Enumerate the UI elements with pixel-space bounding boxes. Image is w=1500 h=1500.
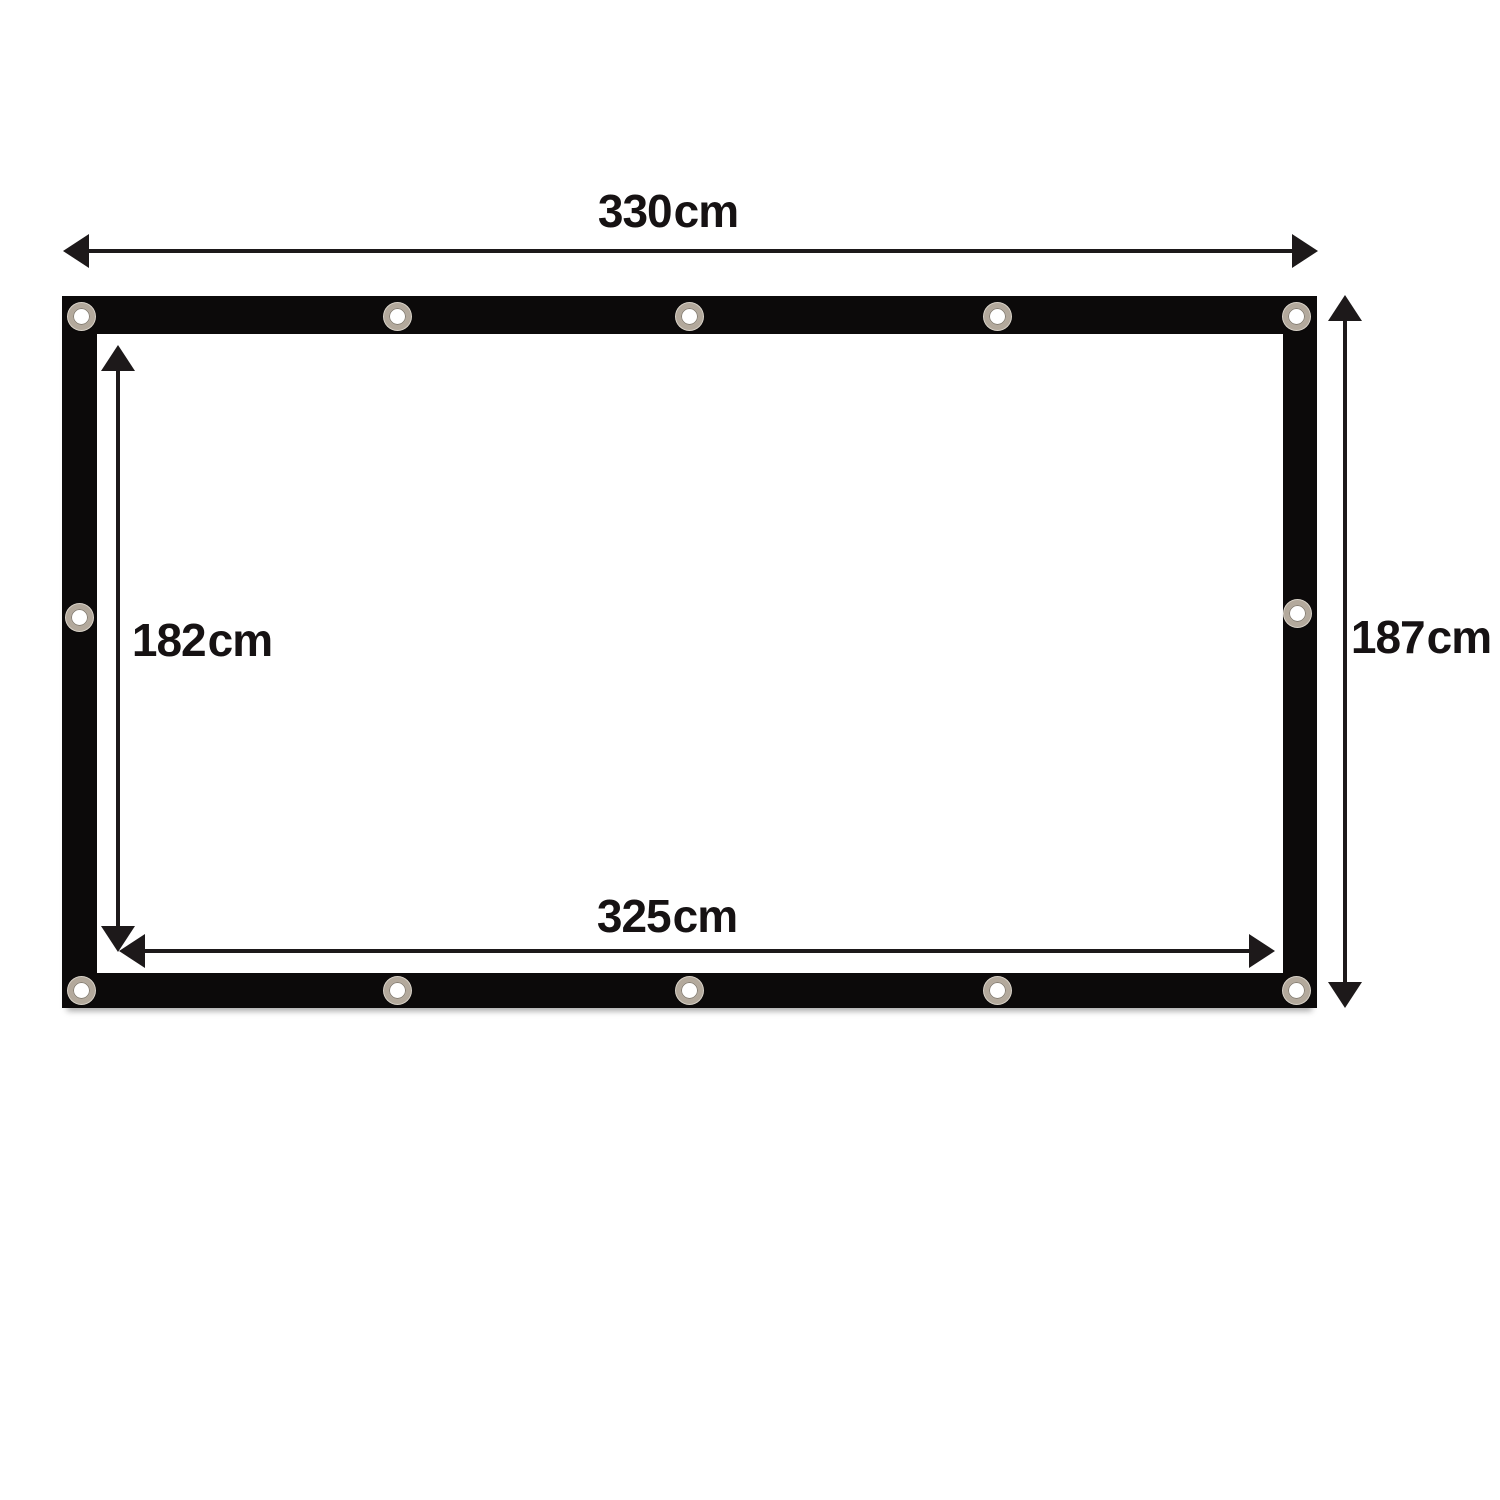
arrowhead-right-icon — [1292, 234, 1318, 268]
outer-width-label: 330cm — [598, 188, 738, 234]
arrow-shaft — [1343, 315, 1347, 988]
grommet-bottom-2 — [384, 977, 411, 1004]
inner-width-value: 325 — [597, 890, 671, 942]
grommet-bottom-5 — [1283, 977, 1310, 1004]
grommet-bottom-1 — [68, 977, 95, 1004]
arrowhead-up-icon — [1328, 295, 1362, 321]
grommet-top-1 — [68, 303, 95, 330]
dimension-diagram: 330cm 182cm 187cm 325cm — [0, 0, 1500, 1500]
grommet-top-5 — [1283, 303, 1310, 330]
inner-width-unit: cm — [673, 890, 737, 942]
outer-width-arrow — [63, 234, 1318, 268]
outer-height-value: 187 — [1351, 611, 1425, 663]
grommet-bottom-3 — [676, 977, 703, 1004]
arrow-shaft — [116, 365, 120, 932]
grommet-top-2 — [384, 303, 411, 330]
arrow-shaft — [83, 249, 1298, 253]
grommet-top-4 — [984, 303, 1011, 330]
arrowhead-left-icon — [119, 934, 145, 968]
grommet-middle-left — [66, 604, 93, 631]
arrowhead-right-icon — [1249, 934, 1275, 968]
outer-height-unit: cm — [1427, 611, 1491, 663]
arrowhead-down-icon — [1328, 982, 1362, 1008]
inner-height-value: 182 — [132, 614, 206, 666]
outer-width-unit: cm — [674, 185, 738, 237]
inner-height-unit: cm — [208, 614, 272, 666]
arrow-shaft — [139, 949, 1255, 953]
inner-height-label: 182cm — [132, 617, 272, 663]
inner-height-arrow — [101, 345, 135, 952]
grommet-top-3 — [676, 303, 703, 330]
outer-width-value: 330 — [598, 185, 672, 237]
outer-height-label: 187cm — [1351, 614, 1491, 660]
grommet-middle-right — [1284, 600, 1311, 627]
arrowhead-up-icon — [101, 345, 135, 371]
inner-width-label: 325cm — [597, 893, 737, 939]
grommet-bottom-4 — [984, 977, 1011, 1004]
arrowhead-left-icon — [63, 234, 89, 268]
